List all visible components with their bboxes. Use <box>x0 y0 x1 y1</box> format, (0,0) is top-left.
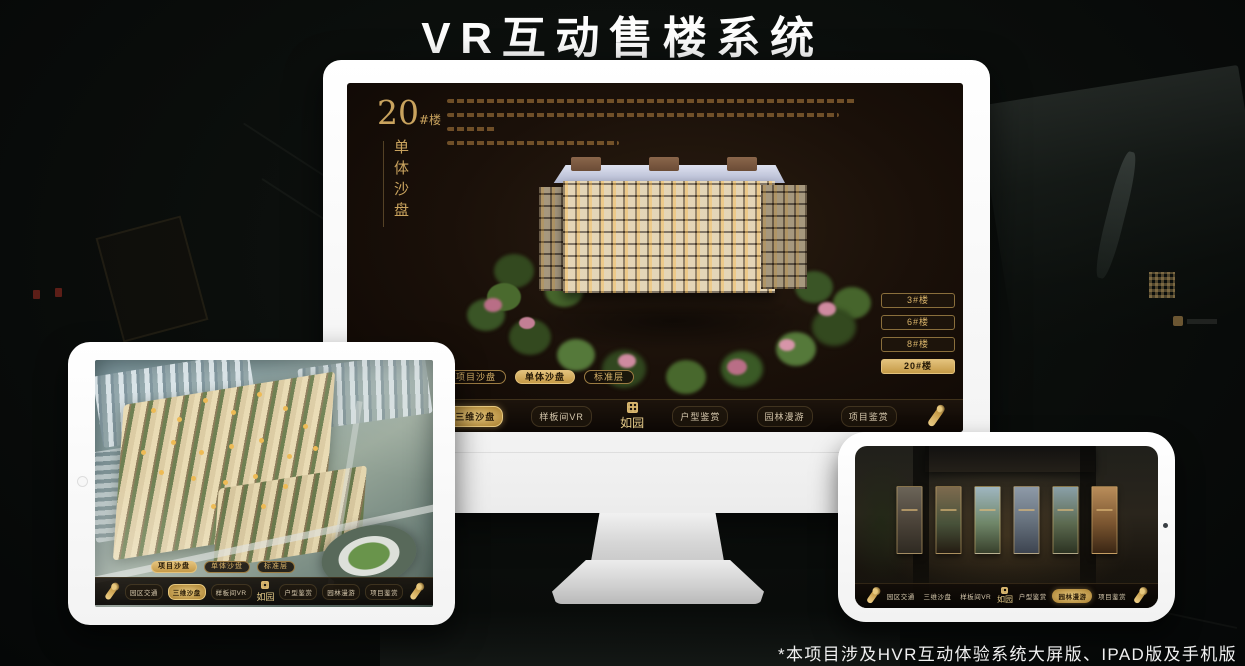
brand-logo: 如园 <box>256 581 274 603</box>
scene-gallery <box>896 486 1117 554</box>
tablet-device: 项目沙盘 单体沙盘 标准层 园区交通 三维沙盘 样板间VR 如园 户型鉴赏 园林… <box>68 342 455 625</box>
seal-icon <box>627 402 638 413</box>
model-flower-shrubs <box>519 317 535 329</box>
building-number: 20 <box>377 93 419 132</box>
background-red-mark <box>55 288 62 297</box>
gallery-panel[interactable] <box>896 486 922 554</box>
brand-logo-text: 如园 <box>620 414 644 431</box>
tablet-bottom-nav: 园区交通 三维沙盘 样板间VR 如园 户型鉴赏 园林漫游 项目鉴赏 <box>95 577 433 605</box>
model-trees <box>487 283 521 311</box>
tablet-screen: 项目沙盘 单体沙盘 标准层 园区交通 三维沙盘 样板间VR 如园 户型鉴赏 园林… <box>95 360 433 607</box>
building-3d-model[interactable] <box>459 141 879 403</box>
courtyard-canopy <box>925 446 1095 472</box>
floor-button-8[interactable]: 8#楼 <box>881 337 955 352</box>
nav-item-project-view[interactable]: 项目鉴赏 <box>841 406 897 427</box>
nav-item-3d-sandtable[interactable]: 三维沙盘 <box>168 584 206 600</box>
brand-logo: 如园 <box>620 402 644 431</box>
background-small-logo <box>1173 316 1183 326</box>
scroll-icon[interactable] <box>927 405 945 427</box>
tab-standard-floor[interactable]: 标准层 <box>584 370 634 384</box>
background-aerial-photo <box>977 65 1245 353</box>
nav-item-garden-roam[interactable]: 园林漫游 <box>757 406 813 427</box>
phone-device: 园区交通 三维沙盘 样板间VR 如园 户型鉴赏 园林漫游 项目鉴赏 <box>838 432 1175 622</box>
tab-standard-floor[interactable]: 标准层 <box>257 561 295 573</box>
tab-single-building-sandtable[interactable]: 单体沙盘 <box>515 370 575 384</box>
roof-cap <box>727 157 757 171</box>
brand-logo-text: 如园 <box>997 594 1013 605</box>
background-red-mark <box>33 290 40 299</box>
monitor-stand-base <box>552 560 764 604</box>
building-facade <box>563 181 775 293</box>
tablet-camera <box>77 476 88 487</box>
monitor-stand-neck <box>590 513 725 567</box>
footnote-text: *本项目涉及HVR互动体验系统大屏版、IPAD版及手机版 <box>778 640 1237 665</box>
background-small-text-bar <box>1187 319 1217 324</box>
gallery-panel[interactable] <box>974 486 1000 554</box>
tablet-sandtable-subtabs: 项目沙盘 单体沙盘 标准层 <box>151 561 295 573</box>
scroll-icon[interactable] <box>866 588 880 605</box>
nav-item-garden-roam[interactable]: 园林漫游 <box>322 584 360 600</box>
gallery-panel[interactable] <box>935 486 961 554</box>
roof-cap <box>649 157 679 171</box>
seal-icon <box>1001 587 1008 594</box>
page-title: VR互动售楼系统 <box>0 2 1245 66</box>
nav-item-park-traffic[interactable]: 园区交通 <box>884 589 918 603</box>
gallery-panel[interactable] <box>1091 486 1117 554</box>
tab-project-sandtable[interactable]: 项目沙盘 <box>151 561 197 573</box>
floor-button-20[interactable]: 20#楼 <box>881 359 955 374</box>
gallery-panel[interactable] <box>1013 486 1039 554</box>
seal-icon <box>261 581 269 589</box>
brand-logo: 如园 <box>997 587 1013 605</box>
phone-screen: 园区交通 三维沙盘 样板间VR 如园 户型鉴赏 园林漫游 项目鉴赏 <box>855 446 1158 608</box>
background-plaque <box>96 215 209 342</box>
gallery-panel[interactable] <box>1052 486 1078 554</box>
nav-item-park-traffic[interactable]: 园区交通 <box>125 584 163 600</box>
nav-item-project-view[interactable]: 项目鉴赏 <box>365 584 403 600</box>
scroll-icon[interactable] <box>104 583 119 600</box>
building-heading: 20#楼 <box>377 93 441 132</box>
nav-item-floorplan-view[interactable]: 户型鉴赏 <box>279 584 317 600</box>
roof-cap <box>571 157 601 171</box>
brand-logo-text: 如园 <box>256 590 274 603</box>
nav-item-model-room-vr[interactable]: 样板间VR <box>211 584 252 600</box>
building-wing-right <box>761 185 807 289</box>
background-river <box>1092 150 1141 280</box>
scroll-icon[interactable] <box>1133 588 1147 605</box>
heading-divider <box>383 141 384 227</box>
phone-camera <box>1163 523 1168 528</box>
sandtable-subtabs: 项目沙盘 单体沙盘 标准层 <box>446 370 634 384</box>
model-building <box>545 157 795 317</box>
nav-item-3d-sandtable[interactable]: 三维沙盘 <box>920 589 954 603</box>
nav-item-model-room-vr[interactable]: 样板间VR <box>531 406 592 427</box>
phone-bottom-nav: 园区交通 三维沙盘 样板间VR 如园 户型鉴赏 园林漫游 项目鉴赏 <box>855 583 1158 608</box>
tab-project-sandtable[interactable]: 项目沙盘 <box>446 370 506 384</box>
scroll-icon[interactable] <box>409 583 424 600</box>
floor-button-6[interactable]: 6#楼 <box>881 315 955 330</box>
tab-single-building-sandtable[interactable]: 单体沙盘 <box>204 561 250 573</box>
background-qr-code <box>1149 272 1175 298</box>
nav-item-floorplan-view[interactable]: 户型鉴赏 <box>672 406 728 427</box>
nav-item-project-view[interactable]: 项目鉴赏 <box>1095 589 1129 603</box>
heading-subtitle-vertical: 单体沙盘 <box>391 139 412 239</box>
nav-item-floorplan-view[interactable]: 户型鉴赏 <box>1016 589 1050 603</box>
nav-item-model-room-vr[interactable]: 样板间VR <box>957 589 994 603</box>
nav-item-garden-roam[interactable]: 园林漫游 <box>1052 589 1092 603</box>
floor-button-3[interactable]: 3#楼 <box>881 293 955 308</box>
nav-item-3d-sandtable[interactable]: 三维沙盘 <box>447 406 503 427</box>
floor-button-group: 3#楼 6#楼 8#楼 20#楼 <box>881 293 957 381</box>
building-number-suffix: #楼 <box>419 113 441 127</box>
